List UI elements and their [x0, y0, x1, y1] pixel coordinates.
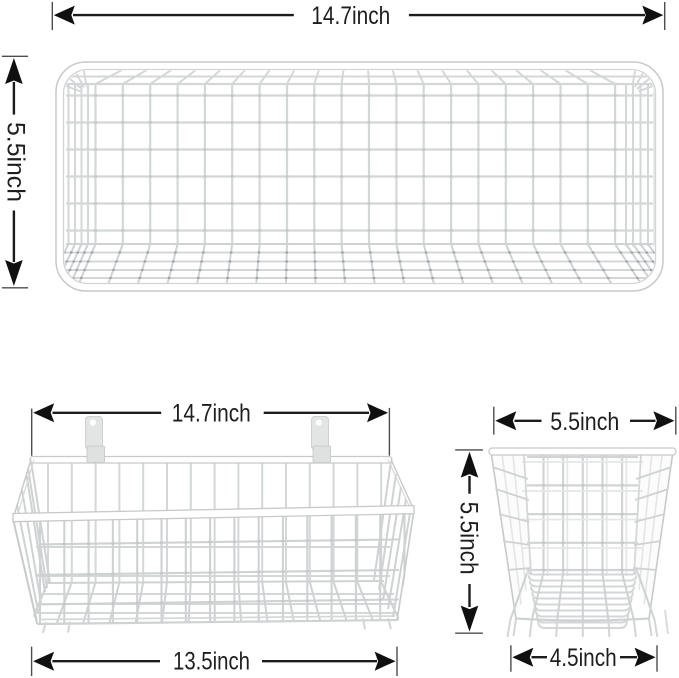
svg-text:5.5inch: 5.5inch [454, 502, 482, 575]
svg-text:5.5inch: 5.5inch [1, 122, 29, 202]
svg-text:14.7inch: 14.7inch [172, 399, 251, 427]
svg-text:14.7inch: 14.7inch [311, 2, 390, 30]
svg-text:4.5inch: 4.5inch [550, 644, 617, 672]
svg-text:5.5inch: 5.5inch [550, 408, 619, 436]
svg-text:13.5inch: 13.5inch [173, 648, 250, 676]
